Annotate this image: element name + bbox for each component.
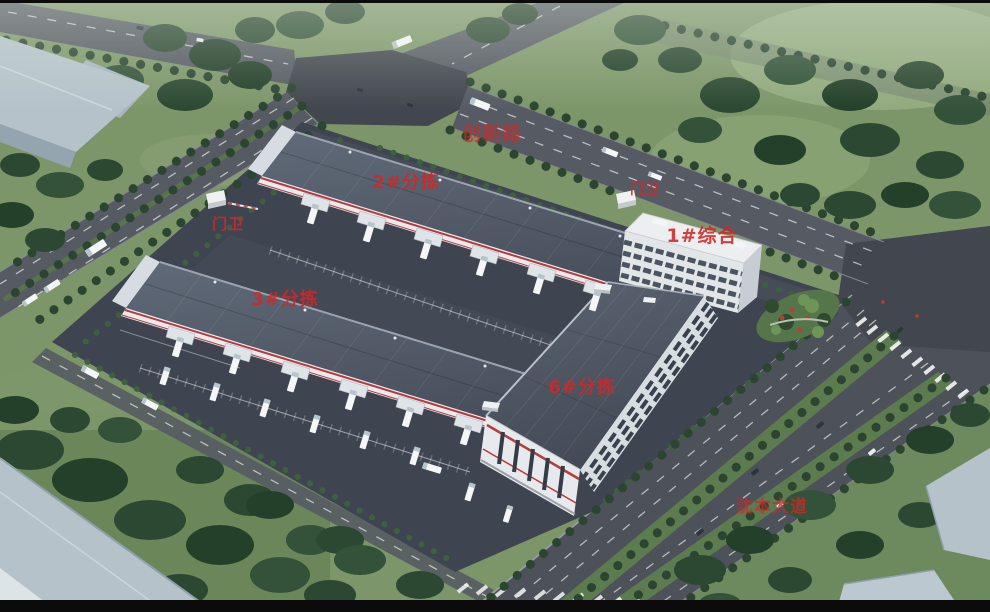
label-warehouse-2: 2#分拣 bbox=[372, 171, 440, 193]
haze-overlay bbox=[0, 0, 990, 110]
label-warehouse-6: 6#分拣 bbox=[548, 376, 616, 398]
aerial-render-viewport: 创新路 2#分拣 门卫 1#综合 门卫 3#分拣 6#分拣 沈本大道 bbox=[0, 0, 990, 612]
label-shenben-avenue: 沈本大道 bbox=[736, 496, 808, 517]
logistics-park-aerial-view: 创新路 2#分拣 门卫 1#综合 门卫 3#分拣 6#分拣 沈本大道 bbox=[0, 0, 990, 612]
bottom-letterbox-bar bbox=[0, 600, 990, 612]
label-chuangxin-road: 创新路 bbox=[461, 122, 522, 145]
top-letterbox-bar bbox=[0, 0, 990, 3]
label-gate-east: 门卫 bbox=[630, 181, 660, 198]
label-gate-west: 门卫 bbox=[212, 215, 244, 233]
label-office-1: 1#综合 bbox=[666, 224, 737, 247]
label-warehouse-3: 3#分拣 bbox=[251, 288, 319, 310]
